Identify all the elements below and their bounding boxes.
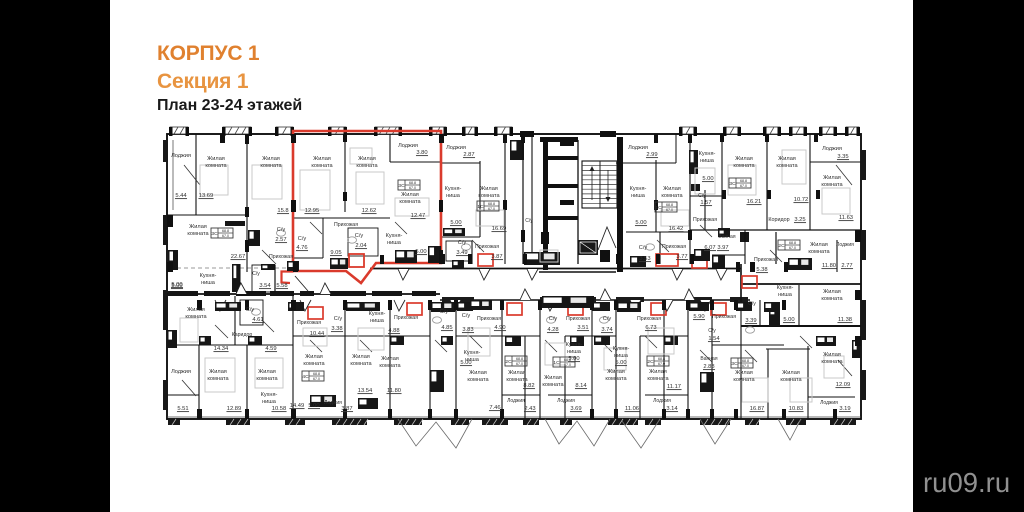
svg-text:Кухня-: Кухня-: [699, 151, 716, 157]
svg-text:2.87: 2.87: [463, 152, 474, 158]
svg-text:ниша: ниша: [631, 193, 646, 199]
svg-text:4.59: 4.59: [265, 346, 276, 352]
svg-text:комната: комната: [605, 376, 627, 382]
svg-text:67.0: 67.0: [564, 363, 571, 367]
svg-text:С/у: С/у: [603, 316, 612, 322]
svg-text:5.00: 5.00: [783, 317, 794, 323]
svg-text:11.80: 11.80: [387, 388, 401, 394]
svg-text:комната: комната: [256, 376, 278, 382]
svg-text:Жилая: Жилая: [823, 175, 841, 181]
svg-text:Кухня-: Кухня-: [369, 311, 386, 317]
svg-text:3С: 3С: [731, 361, 738, 367]
svg-text:16.69: 16.69: [492, 226, 507, 232]
svg-text:ниша: ниша: [387, 240, 402, 246]
svg-text:11.17: 11.17: [667, 384, 681, 390]
svg-text:2С: 2С: [778, 243, 785, 249]
svg-text:Ванная: Ванная: [718, 234, 735, 240]
svg-text:68.8: 68.8: [222, 229, 229, 233]
svg-text:Жилая: Жилая: [782, 370, 800, 376]
svg-text:5.90: 5.90: [693, 314, 704, 320]
svg-text:10.44: 10.44: [310, 331, 325, 337]
svg-text:ниша: ниша: [262, 399, 277, 405]
svg-text:ниша: ниша: [446, 193, 461, 199]
svg-text:Лоджия: Лоджия: [171, 369, 191, 375]
svg-text:1.57: 1.57: [700, 200, 711, 206]
svg-text:3.97: 3.97: [717, 245, 728, 251]
svg-text:комната: комната: [478, 193, 500, 199]
svg-text:4.28: 4.28: [547, 327, 558, 333]
svg-text:Лоджия: Лоджия: [171, 153, 191, 159]
svg-text:Лоджия: Лоджия: [836, 242, 854, 248]
svg-text:68.8: 68.8: [658, 357, 665, 361]
svg-text:68.8: 68.8: [564, 358, 571, 362]
svg-text:ниша: ниша: [614, 353, 629, 359]
svg-text:16.42: 16.42: [669, 226, 684, 232]
svg-text:комната: комната: [542, 382, 564, 388]
svg-text:комната: комната: [821, 182, 843, 188]
svg-text:67.0: 67.0: [313, 377, 320, 381]
svg-text:14.49: 14.49: [290, 403, 305, 409]
svg-text:Секция 1: Секция 1: [157, 70, 249, 93]
svg-text:комната: комната: [733, 163, 755, 169]
svg-text:5.00: 5.00: [450, 220, 461, 226]
svg-text:С/у: С/у: [298, 236, 307, 242]
svg-text:6.73: 6.73: [645, 325, 656, 331]
svg-text:68.8: 68.8: [666, 203, 673, 207]
svg-text:Жилая: Жилая: [305, 354, 323, 360]
svg-text:6.07: 6.07: [704, 245, 715, 251]
svg-text:10.72: 10.72: [794, 197, 809, 203]
svg-text:Лоджия: Лоджия: [446, 145, 466, 151]
svg-text:68.8: 68.8: [313, 372, 320, 376]
svg-text:3.53: 3.53: [639, 256, 650, 262]
svg-text:2С: 2С: [647, 359, 654, 365]
svg-text:5.58: 5.58: [276, 283, 287, 289]
svg-text:68.8: 68.8: [516, 357, 523, 361]
svg-text:Жилая: Жилая: [313, 156, 331, 162]
svg-text:16.21: 16.21: [747, 199, 762, 205]
svg-text:15.8: 15.8: [277, 208, 288, 214]
svg-text:С/у: С/у: [252, 271, 260, 277]
svg-text:11.63: 11.63: [839, 215, 853, 221]
svg-text:8.82: 8.82: [523, 383, 534, 389]
svg-text:ниша: ниша: [201, 280, 216, 286]
svg-text:Прихожая: Прихожая: [334, 222, 358, 228]
svg-text:67.0: 67.0: [516, 362, 523, 366]
svg-text:2С: 2С: [505, 359, 512, 365]
svg-text:3.39: 3.39: [745, 318, 756, 324]
svg-text:3.69: 3.69: [570, 406, 581, 412]
svg-text:9.05: 9.05: [330, 250, 341, 256]
svg-text:11.38: 11.38: [838, 317, 852, 323]
svg-text:Жилая: Жилая: [352, 354, 370, 360]
svg-text:13.54: 13.54: [358, 388, 373, 394]
svg-text:67.0: 67.0: [222, 234, 229, 238]
svg-text:Жилая: Жилая: [469, 370, 487, 376]
svg-text:Лоджия: Лоджия: [628, 145, 648, 151]
svg-text:4.88: 4.88: [388, 328, 399, 334]
svg-text:2.04: 2.04: [355, 243, 367, 249]
svg-text:Прихожая: Прихожая: [693, 217, 717, 223]
svg-text:Прихожая: Прихожая: [754, 257, 778, 263]
svg-text:Лоджия: Лоджия: [820, 400, 838, 406]
svg-text:3С: 3С: [398, 183, 405, 189]
svg-text:10.58: 10.58: [272, 406, 287, 412]
svg-text:12.09: 12.09: [836, 382, 851, 388]
svg-text:Жилая: Жилая: [209, 369, 227, 375]
svg-text:С/у: С/у: [525, 218, 533, 224]
svg-text:С/у: С/у: [277, 227, 286, 233]
svg-text:комната: комната: [821, 359, 843, 365]
svg-text:комната: комната: [303, 361, 325, 367]
svg-text:3.14: 3.14: [666, 406, 678, 412]
svg-text:1С: 1С: [477, 204, 484, 210]
svg-text:3.87: 3.87: [491, 254, 502, 260]
svg-text:4.76: 4.76: [296, 245, 307, 251]
svg-text:План 23-24 этажей: План 23-24 этажей: [157, 97, 302, 114]
svg-text:Жилая: Жилая: [607, 369, 625, 375]
svg-text:5.00: 5.00: [460, 360, 471, 366]
svg-text:67.0: 67.0: [658, 362, 665, 366]
svg-text:11.06: 11.06: [625, 406, 639, 412]
svg-text:КОРПУС 1: КОРПУС 1: [157, 42, 260, 65]
svg-text:С/у: С/у: [246, 307, 255, 313]
svg-text:Жилая: Жилая: [508, 370, 526, 376]
svg-text:68.8: 68.8: [742, 359, 749, 363]
svg-text:3.54: 3.54: [259, 283, 271, 289]
svg-text:12.62: 12.62: [362, 208, 377, 214]
svg-text:1С: 1С: [655, 205, 662, 211]
svg-text:Жилая: Жилая: [649, 369, 667, 375]
svg-text:С/у: С/у: [639, 245, 648, 251]
svg-text:комната: комната: [311, 163, 333, 169]
svg-text:Лоджия: Лоджия: [557, 398, 575, 404]
svg-text:Жилая: Жилая: [401, 192, 419, 198]
svg-text:комната: комната: [780, 377, 802, 383]
svg-text:3.35: 3.35: [837, 154, 848, 160]
svg-text:Прихожая: Прихожая: [662, 244, 686, 250]
svg-text:комната: комната: [260, 163, 282, 169]
svg-text:5.00: 5.00: [415, 249, 426, 255]
svg-text:Кухня-: Кухня-: [200, 273, 217, 279]
svg-text:10.83: 10.83: [789, 406, 804, 412]
svg-text:Кухня-: Кухня-: [777, 285, 794, 291]
svg-text:4.85: 4.85: [441, 325, 452, 331]
svg-text:5.00: 5.00: [308, 403, 319, 409]
svg-text:Кухня-: Кухня-: [261, 392, 278, 398]
svg-text:67.0: 67.0: [666, 208, 673, 212]
svg-text:3.49: 3.49: [456, 250, 467, 256]
svg-text:3С: 3С: [211, 231, 218, 237]
svg-text:Жилая: Жилая: [735, 156, 753, 162]
svg-text:Жилая: Жилая: [735, 370, 753, 376]
svg-text:С/у: С/у: [708, 328, 716, 334]
svg-text:С/у: С/у: [458, 240, 467, 246]
svg-text:Прихожая: Прихожая: [712, 314, 736, 320]
svg-text:67.0: 67.0: [742, 364, 749, 368]
svg-text:комната: комната: [356, 163, 378, 169]
svg-text:Прихожая: Прихожая: [297, 320, 321, 326]
svg-text:комната: комната: [808, 249, 830, 255]
svg-text:16.87: 16.87: [750, 406, 765, 412]
svg-text:комната: комната: [379, 363, 401, 369]
svg-text:комната: комната: [207, 376, 229, 382]
svg-text:5.38: 5.38: [756, 267, 767, 273]
svg-text:ниша: ниша: [567, 349, 582, 355]
svg-text:3.38: 3.38: [331, 326, 342, 332]
svg-text:С/у: С/у: [334, 316, 343, 322]
svg-text:3.80: 3.80: [416, 150, 427, 156]
svg-text:Кухня-: Кухня-: [613, 346, 630, 352]
svg-text:ниша: ниша: [778, 292, 793, 298]
svg-text:Прихожая: Прихожая: [269, 254, 293, 260]
svg-text:Жилая: Жилая: [207, 156, 225, 162]
svg-text:Жилая: Жилая: [778, 156, 796, 162]
svg-text:комната: комната: [185, 314, 207, 320]
svg-text:Лоджия: Лоджия: [822, 146, 842, 152]
svg-text:Жилая: Жилая: [262, 156, 280, 162]
svg-text:комната: комната: [661, 193, 683, 199]
svg-text:ниша: ниша: [700, 158, 715, 164]
svg-text:Жилая: Жилая: [823, 289, 841, 295]
svg-text:ниша: ниша: [370, 318, 385, 324]
svg-text:2.43: 2.43: [524, 406, 535, 412]
svg-text:комната: комната: [205, 163, 227, 169]
svg-text:2.77: 2.77: [841, 263, 852, 269]
svg-text:С/у: С/у: [748, 301, 756, 307]
svg-text:67.0: 67.0: [789, 246, 796, 250]
svg-text:С/у: С/у: [549, 316, 558, 322]
svg-text:13.69: 13.69: [199, 193, 214, 199]
svg-text:5.51: 5.51: [177, 406, 188, 412]
svg-text:2.88: 2.88: [703, 364, 714, 370]
svg-text:68.8: 68.8: [409, 181, 416, 185]
svg-text:5.00: 5.00: [615, 360, 626, 366]
svg-text:комната: комната: [467, 377, 489, 383]
svg-text:Лоджия: Лоджия: [324, 400, 342, 406]
svg-text:Коридор: Коридор: [768, 217, 789, 223]
svg-text:4.90: 4.90: [494, 325, 505, 331]
svg-text:Прихожая: Прихожая: [477, 316, 501, 322]
svg-text:Кухня-: Кухня-: [566, 342, 583, 348]
svg-text:1.54: 1.54: [708, 336, 720, 342]
svg-text:1С: 1С: [553, 360, 560, 366]
svg-text:3.74: 3.74: [601, 327, 613, 333]
svg-text:5.00: 5.00: [635, 220, 646, 226]
svg-text:4С: 4С: [302, 374, 309, 380]
svg-text:Прихожая: Прихожая: [475, 244, 499, 250]
svg-text:Жилая: Жилая: [381, 356, 399, 362]
svg-text:4.61: 4.61: [252, 317, 263, 323]
svg-text:3.25: 3.25: [794, 217, 805, 223]
svg-text:комната: комната: [647, 376, 669, 382]
svg-text:Жилая: Жилая: [480, 186, 498, 192]
svg-text:3.51: 3.51: [577, 325, 588, 331]
svg-text:14.34: 14.34: [214, 346, 229, 352]
svg-text:12.89: 12.89: [227, 406, 242, 412]
svg-text:Прихожая: Прихожая: [637, 316, 661, 322]
svg-text:68.8: 68.8: [740, 179, 747, 183]
svg-text:67.0: 67.0: [409, 186, 416, 190]
svg-text:5.00: 5.00: [171, 282, 182, 288]
svg-text:Кухня-: Кухня-: [464, 350, 481, 356]
svg-text:22.67: 22.67: [231, 254, 246, 260]
svg-text:Лоджия: Лоджия: [507, 398, 525, 404]
svg-text:комната: комната: [350, 361, 372, 367]
svg-text:Ванная: Ванная: [700, 356, 717, 362]
svg-text:С/у: С/у: [355, 233, 364, 239]
svg-text:12.47: 12.47: [411, 213, 426, 219]
svg-text:Жилая: Жилая: [823, 352, 841, 358]
svg-text:комната: комната: [733, 377, 755, 383]
svg-text:Кухня-: Кухня-: [630, 186, 647, 192]
svg-text:2.99: 2.99: [646, 152, 657, 158]
svg-text:8.14: 8.14: [575, 383, 587, 389]
svg-text:Кухня-: Кухня-: [386, 233, 403, 239]
svg-text:68.8: 68.8: [488, 202, 495, 206]
svg-text:2.57: 2.57: [275, 237, 286, 243]
svg-text:С/у: С/у: [440, 309, 449, 315]
svg-text:67.0: 67.0: [488, 207, 495, 211]
svg-text:3.19: 3.19: [839, 406, 850, 412]
svg-text:Каридор: Каридор: [232, 332, 253, 338]
svg-text:5.44: 5.44: [175, 193, 187, 199]
svg-text:67.0: 67.0: [740, 184, 747, 188]
svg-text:Жилая: Жилая: [189, 224, 207, 230]
svg-text:С/у: С/у: [698, 193, 706, 199]
svg-text:Прихожая: Прихожая: [394, 315, 418, 321]
svg-text:12.95: 12.95: [305, 208, 320, 214]
svg-text:С/у: С/у: [462, 313, 471, 319]
svg-text:68.8: 68.8: [789, 241, 796, 245]
svg-text:Лоджия: Лоджия: [398, 143, 418, 149]
svg-text:Лоджия: Лоджия: [653, 398, 671, 404]
svg-text:3.87: 3.87: [341, 406, 352, 412]
svg-text:Жилая: Жилая: [544, 375, 562, 381]
svg-text:5.00: 5.00: [702, 176, 713, 182]
svg-text:комната: комната: [776, 163, 798, 169]
svg-text:Жилая: Жилая: [358, 156, 376, 162]
svg-text:Кухня-: Кухня-: [445, 186, 462, 192]
svg-text:ru09.ru: ru09.ru: [923, 467, 1010, 498]
svg-text:комната: комната: [821, 296, 843, 302]
svg-text:комната: комната: [187, 231, 209, 237]
svg-text:3.77: 3.77: [676, 254, 687, 260]
svg-text:комната: комната: [399, 199, 421, 205]
svg-text:Жилая: Жилая: [663, 186, 681, 192]
svg-text:3.83: 3.83: [462, 327, 473, 333]
svg-text:7.46: 7.46: [489, 405, 500, 411]
svg-text:Прихожая: Прихожая: [566, 316, 590, 322]
svg-text:3С: 3С: [729, 181, 736, 187]
svg-text:11.80: 11.80: [822, 263, 836, 269]
svg-text:Жилая: Жилая: [810, 242, 828, 248]
svg-text:Жилая: Жилая: [187, 307, 205, 313]
svg-text:Жилая: Жилая: [258, 369, 276, 375]
